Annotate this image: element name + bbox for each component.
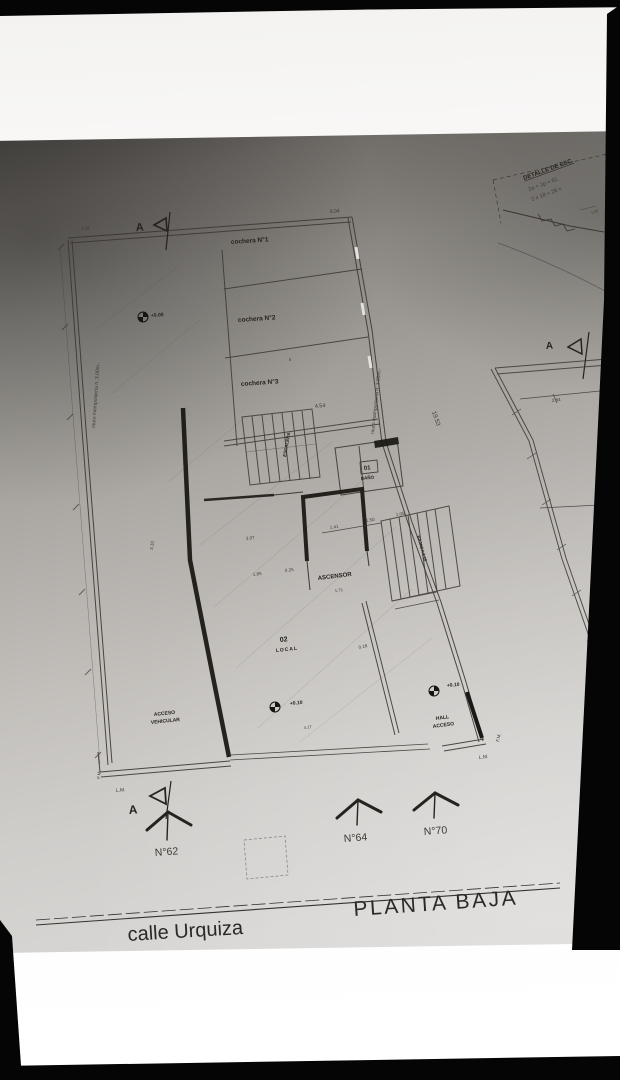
photographed-paper [0,131,620,953]
photo-of-floor-plan: L.M.8.04Acochera N°1cochera N°2cochera N… [0,0,620,1080]
